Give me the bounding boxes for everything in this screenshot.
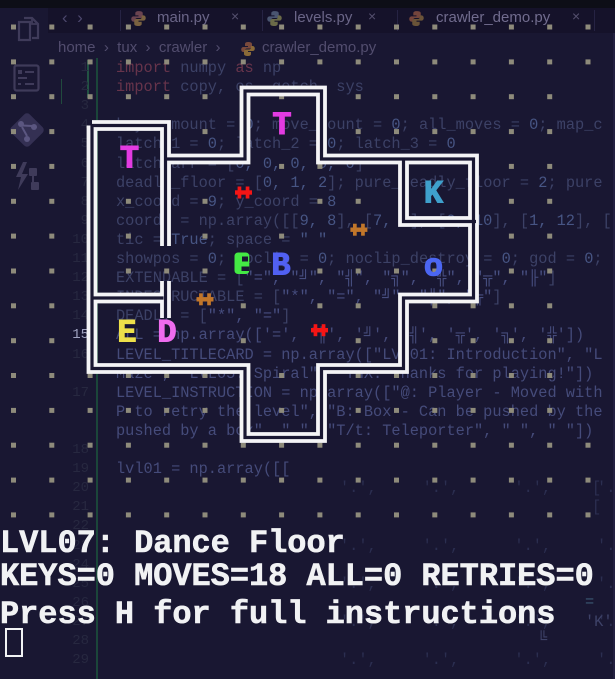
svg-text:E: E <box>117 315 136 352</box>
svg-text:T: T <box>120 141 139 178</box>
svg-text:o: o <box>424 249 443 286</box>
svg-text:T: T <box>272 107 291 144</box>
svg-text:B: B <box>271 248 290 285</box>
svg-text:D: D <box>157 315 176 352</box>
svg-text:K: K <box>424 176 444 213</box>
